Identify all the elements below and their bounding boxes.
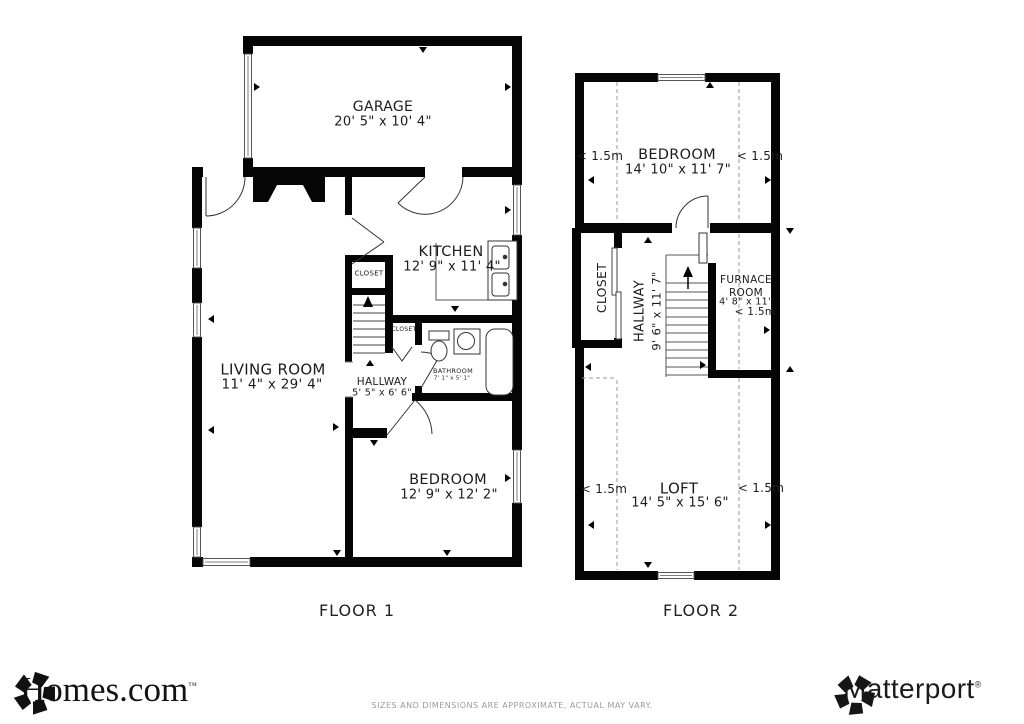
kitchen-label: KITCHEN bbox=[419, 245, 484, 260]
matterport-logo-icon bbox=[833, 673, 877, 717]
closet-lower-label: CLOSET bbox=[391, 327, 416, 333]
bathroom-label: BATHROOM bbox=[433, 368, 473, 375]
stairs-floor1 bbox=[353, 305, 385, 353]
floorplan-canvas: GARAGE 20' 5" x 10' 4" KITCHEN 12' 9" x … bbox=[0, 0, 1024, 724]
height-marker-furnace: < 1.5m bbox=[735, 307, 776, 318]
garage-label: GARAGE bbox=[353, 100, 413, 114]
height-marker-loft-left: < 1.5m bbox=[581, 483, 627, 495]
loft-label: LOFT bbox=[660, 482, 698, 497]
bathroom-fixtures bbox=[429, 329, 513, 395]
floor2-title: FLOOR 2 bbox=[663, 603, 739, 619]
bedroom2-label: BEDROOM bbox=[638, 148, 716, 163]
stair-arrow-floor1 bbox=[363, 296, 373, 307]
floorplan-linework bbox=[0, 0, 1024, 724]
living-room-dims: 11' 4" x 29' 4" bbox=[221, 378, 322, 392]
disclaimer-text: SIZES AND DIMENSIONS ARE APPROXIMATE, AC… bbox=[0, 701, 1024, 710]
bathroom-dims: 7' 1" x 5' 1" bbox=[434, 376, 470, 382]
homes-trademark: ™ bbox=[188, 680, 197, 690]
hallway-dims: 5' 5" x 6' 6" bbox=[352, 388, 412, 398]
living-room-label: LIVING ROOM bbox=[220, 363, 325, 378]
floor1-title: FLOOR 1 bbox=[319, 603, 395, 619]
bedroom1-dims: 12' 9" x 12' 2" bbox=[400, 489, 497, 502]
loft-dims: 14' 5" x 15' 6" bbox=[631, 497, 728, 510]
hallway2-label: HALLWAY bbox=[634, 280, 647, 342]
kitchen-dims: 12' 9" x 11' 4" bbox=[403, 261, 500, 274]
garage-dims: 20' 5" x 10' 4" bbox=[334, 116, 431, 129]
height-marker-loft-right: < 1.5m bbox=[738, 482, 784, 494]
stair-arrow-floor2 bbox=[683, 266, 693, 277]
height-marker-bedroom-right: < 1.5m bbox=[737, 150, 783, 162]
bedroom2-dims: 14' 10" x 11' 7" bbox=[625, 164, 731, 177]
height-marker-bedroom-left: < 1.5m bbox=[577, 150, 623, 162]
bedroom1-label: BEDROOM bbox=[409, 473, 487, 488]
closet-upper-label: CLOSET bbox=[355, 271, 384, 278]
hallway2-dims: 9' 6" x 11' 7" bbox=[651, 271, 663, 350]
closet2-label: CLOSET bbox=[596, 263, 609, 313]
matterport-trademark: ® bbox=[975, 680, 982, 690]
hallway-label: HALLWAY bbox=[357, 377, 408, 388]
